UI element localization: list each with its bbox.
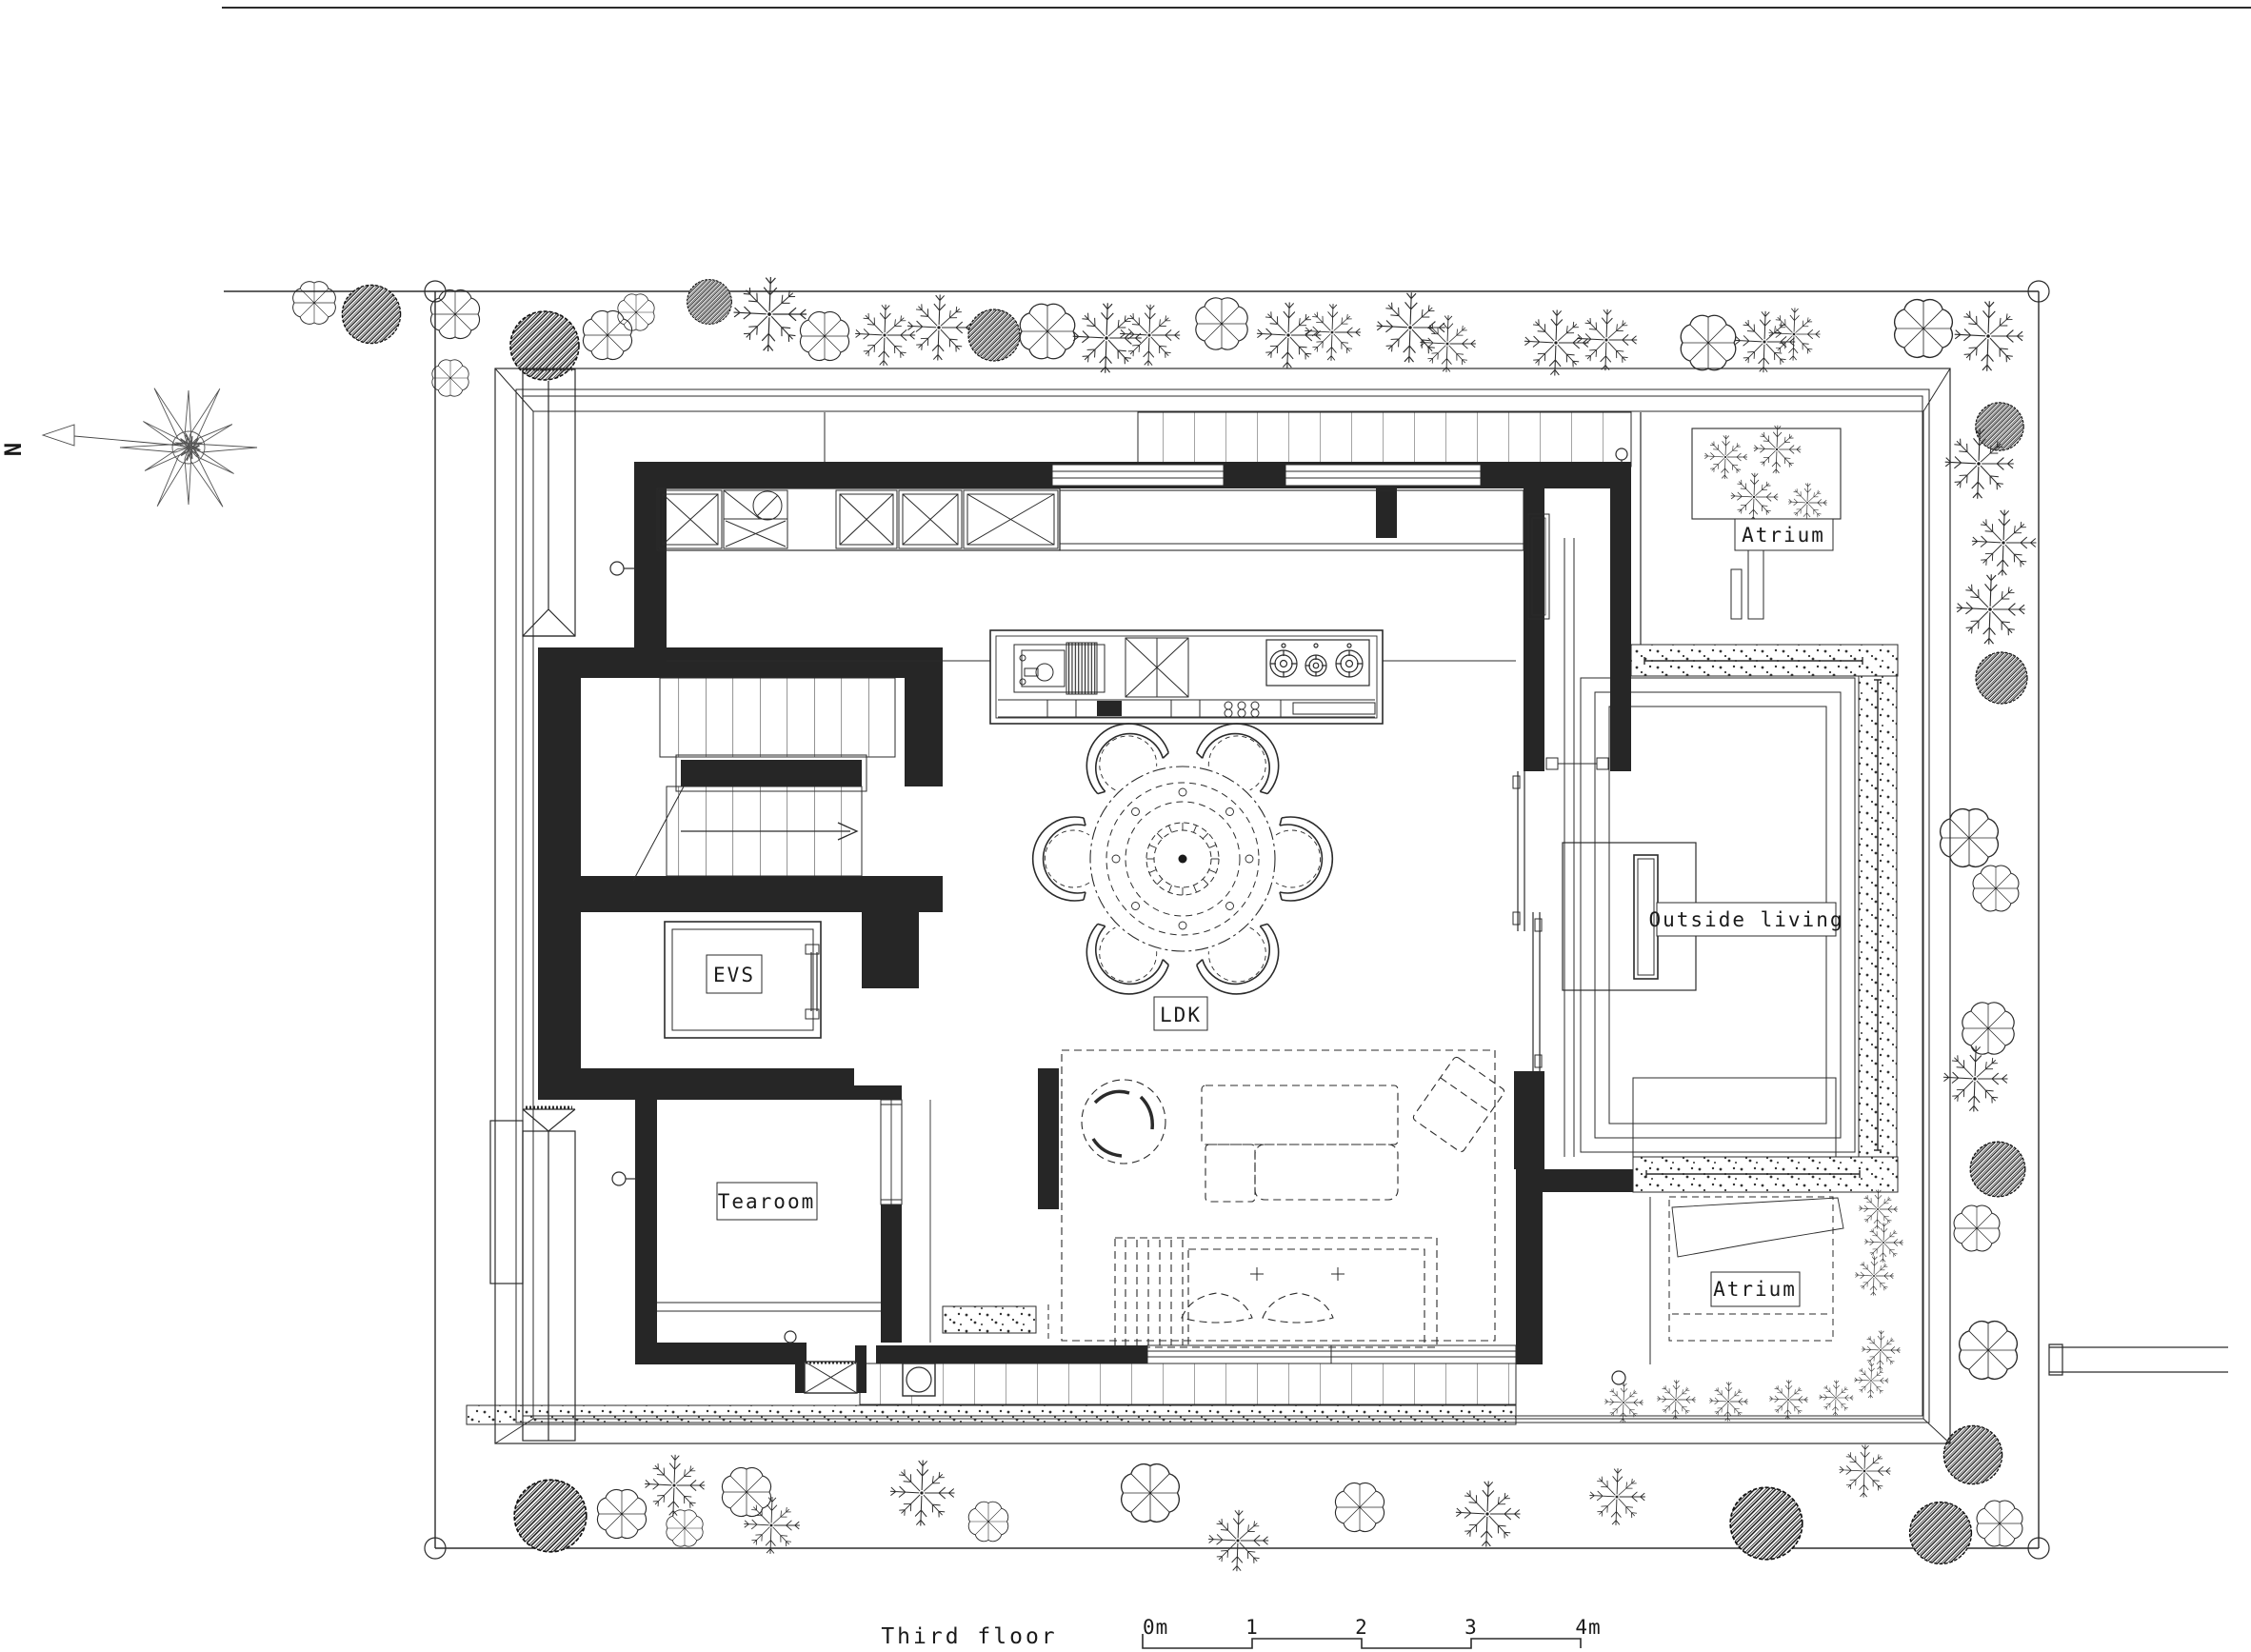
tree-icon [855,305,915,367]
chair-icon [1071,919,1172,1009]
tree-icon [645,1455,705,1517]
gravel-walkway [467,1405,1516,1424]
faucet-icon [1036,664,1053,681]
daybed [1115,1238,1437,1347]
tree-icon [342,285,400,343]
tree-icon [1977,1501,2022,1546]
tree-icon [1972,509,2037,575]
tree-icon [722,1467,770,1516]
chair-icon [1193,708,1294,799]
room-label-atrium-top: Atrium [1742,524,1825,547]
room-label-atrium-bottom: Atrium [1713,1278,1797,1301]
tree-icon [1976,652,2027,704]
doma-gravel [943,1306,1036,1333]
tree-icon [1954,1205,2000,1251]
island-drawers [998,700,1375,717]
scale-label-4: 4m [1575,1616,1601,1639]
tree-icon [1910,1503,1972,1564]
tree-icon [1524,309,1589,375]
tree-icon [1589,1468,1645,1525]
scale-label-0: 0m [1143,1616,1168,1639]
cushion [1182,1293,1252,1323]
chair-icon [1276,817,1332,901]
tree-icon [1788,483,1827,523]
tree-icon [890,1460,955,1525]
shrub-icon [1862,1330,1901,1370]
shrub-icon [1657,1380,1696,1420]
page-title: Third floor [881,1624,1057,1649]
utility-markers [610,448,1627,1384]
tree-icon [800,311,848,360]
room-label-outside-living: Outside living [1648,908,1843,931]
shrub-icon [1855,1256,1894,1296]
tree-icon [1196,298,1247,349]
tree-icon [1754,426,1802,474]
scale-bar: 0m 1 2 3 4m [1143,1616,1602,1648]
room-label-evs: EVS [713,964,755,986]
tearoom-window [881,1100,902,1204]
tree-icon [1208,1510,1268,1572]
tree-icon [1335,1483,1384,1531]
north-deck [825,412,1631,467]
room-label-ldk: LDK [1160,1004,1202,1026]
kitchen-island [990,630,1383,724]
tree-icon [1954,301,2022,371]
tree-icon [1970,1142,2025,1197]
tree-icon [1730,1487,1803,1560]
tree-icon [1704,435,1747,479]
tree-icon [1122,1464,1180,1523]
tree-icon [1072,303,1141,373]
tree-icon [733,277,807,352]
drainboard [1066,643,1097,694]
scale-label-1: 1 [1245,1616,1259,1639]
living-area [1062,1050,1505,1347]
tree-icon [1962,1003,2014,1054]
counter [1060,490,1524,550]
tree-icon [1943,1425,2002,1483]
dining-table [1033,708,1333,1009]
tree-icon [1895,300,1953,358]
burner-icon [1336,650,1363,677]
tree-icon [1960,1322,2018,1380]
openings [881,465,1608,1363]
shrub-icon [1859,1189,1898,1229]
tree-icon [583,310,631,359]
bench [2049,1344,2228,1375]
stone-basin [903,1363,935,1396]
tree-icon [1456,1481,1521,1546]
tree-icon [1973,866,2019,911]
chair-icon [1193,919,1294,1009]
burner-icon [1305,655,1326,676]
tree-icon [1731,473,1779,522]
tree-icon [514,1480,587,1552]
stove [1266,640,1369,686]
tree-icon [1257,302,1322,368]
burner-icon [1270,650,1297,677]
shrub-icon [1769,1380,1808,1420]
shrub-icon [1819,1380,1853,1415]
room-label-tearoom: Tearoom [718,1190,816,1213]
sofa [1202,1085,1398,1202]
north-label: N [0,443,27,456]
shrub-icon [1854,1363,1888,1398]
tree-icon [1305,304,1361,361]
dishwasher [1125,638,1188,697]
tree-icon [1420,315,1476,372]
vent-holes [1225,702,1259,717]
tree-icon [1020,304,1074,358]
tree-icon [430,289,479,338]
door-pivot [785,1331,796,1343]
compass-star-icon [43,386,257,509]
tree-icon [1839,1444,1890,1498]
chair-icon [1071,708,1172,799]
sliding-door-east [1513,771,1542,1071]
tree-icon [667,1510,703,1546]
tree-icon [744,1497,800,1554]
round-chair [1082,1080,1165,1164]
tree-icon [1681,315,1735,369]
shrub-icon [1604,1383,1643,1423]
shrub-icon [1864,1223,1903,1263]
tree-icon [1976,403,2023,450]
north-arrow: N [0,386,257,509]
tree-icon [432,360,468,396]
tree-icon [618,294,654,330]
tree-icon [907,294,972,360]
tree-icon [1376,292,1444,363]
title-block: Third floor 0m 1 2 3 4m [881,1616,1601,1649]
sliding-window-south [1147,1345,1516,1363]
island-sink [1014,643,1105,694]
lounge-chair [1412,1056,1505,1153]
entry-porch [805,1362,857,1393]
planter-box [1692,428,1841,519]
scale-label-3: 3 [1464,1616,1478,1639]
tree-icon [687,280,732,325]
walls [538,462,1633,1393]
south-deck [467,1363,1516,1424]
tree-icon [968,309,1020,361]
tree-icon [1956,574,2024,645]
tree-icon [1941,809,1999,867]
floor-plan-sheet: N [0,0,2251,1652]
tree-icon [293,282,336,325]
bedding-sketch [1672,1198,1843,1257]
tree-icon [1943,1045,2008,1111]
trees-right [1941,301,2228,1546]
trees-top [293,277,1953,396]
chair-icon [1033,817,1089,901]
tree-icon [597,1489,646,1538]
trees-bottom [514,1444,1971,1571]
cushion [1263,1293,1333,1323]
scale-label-2: 2 [1355,1616,1368,1639]
tree-icon [968,1502,1007,1541]
